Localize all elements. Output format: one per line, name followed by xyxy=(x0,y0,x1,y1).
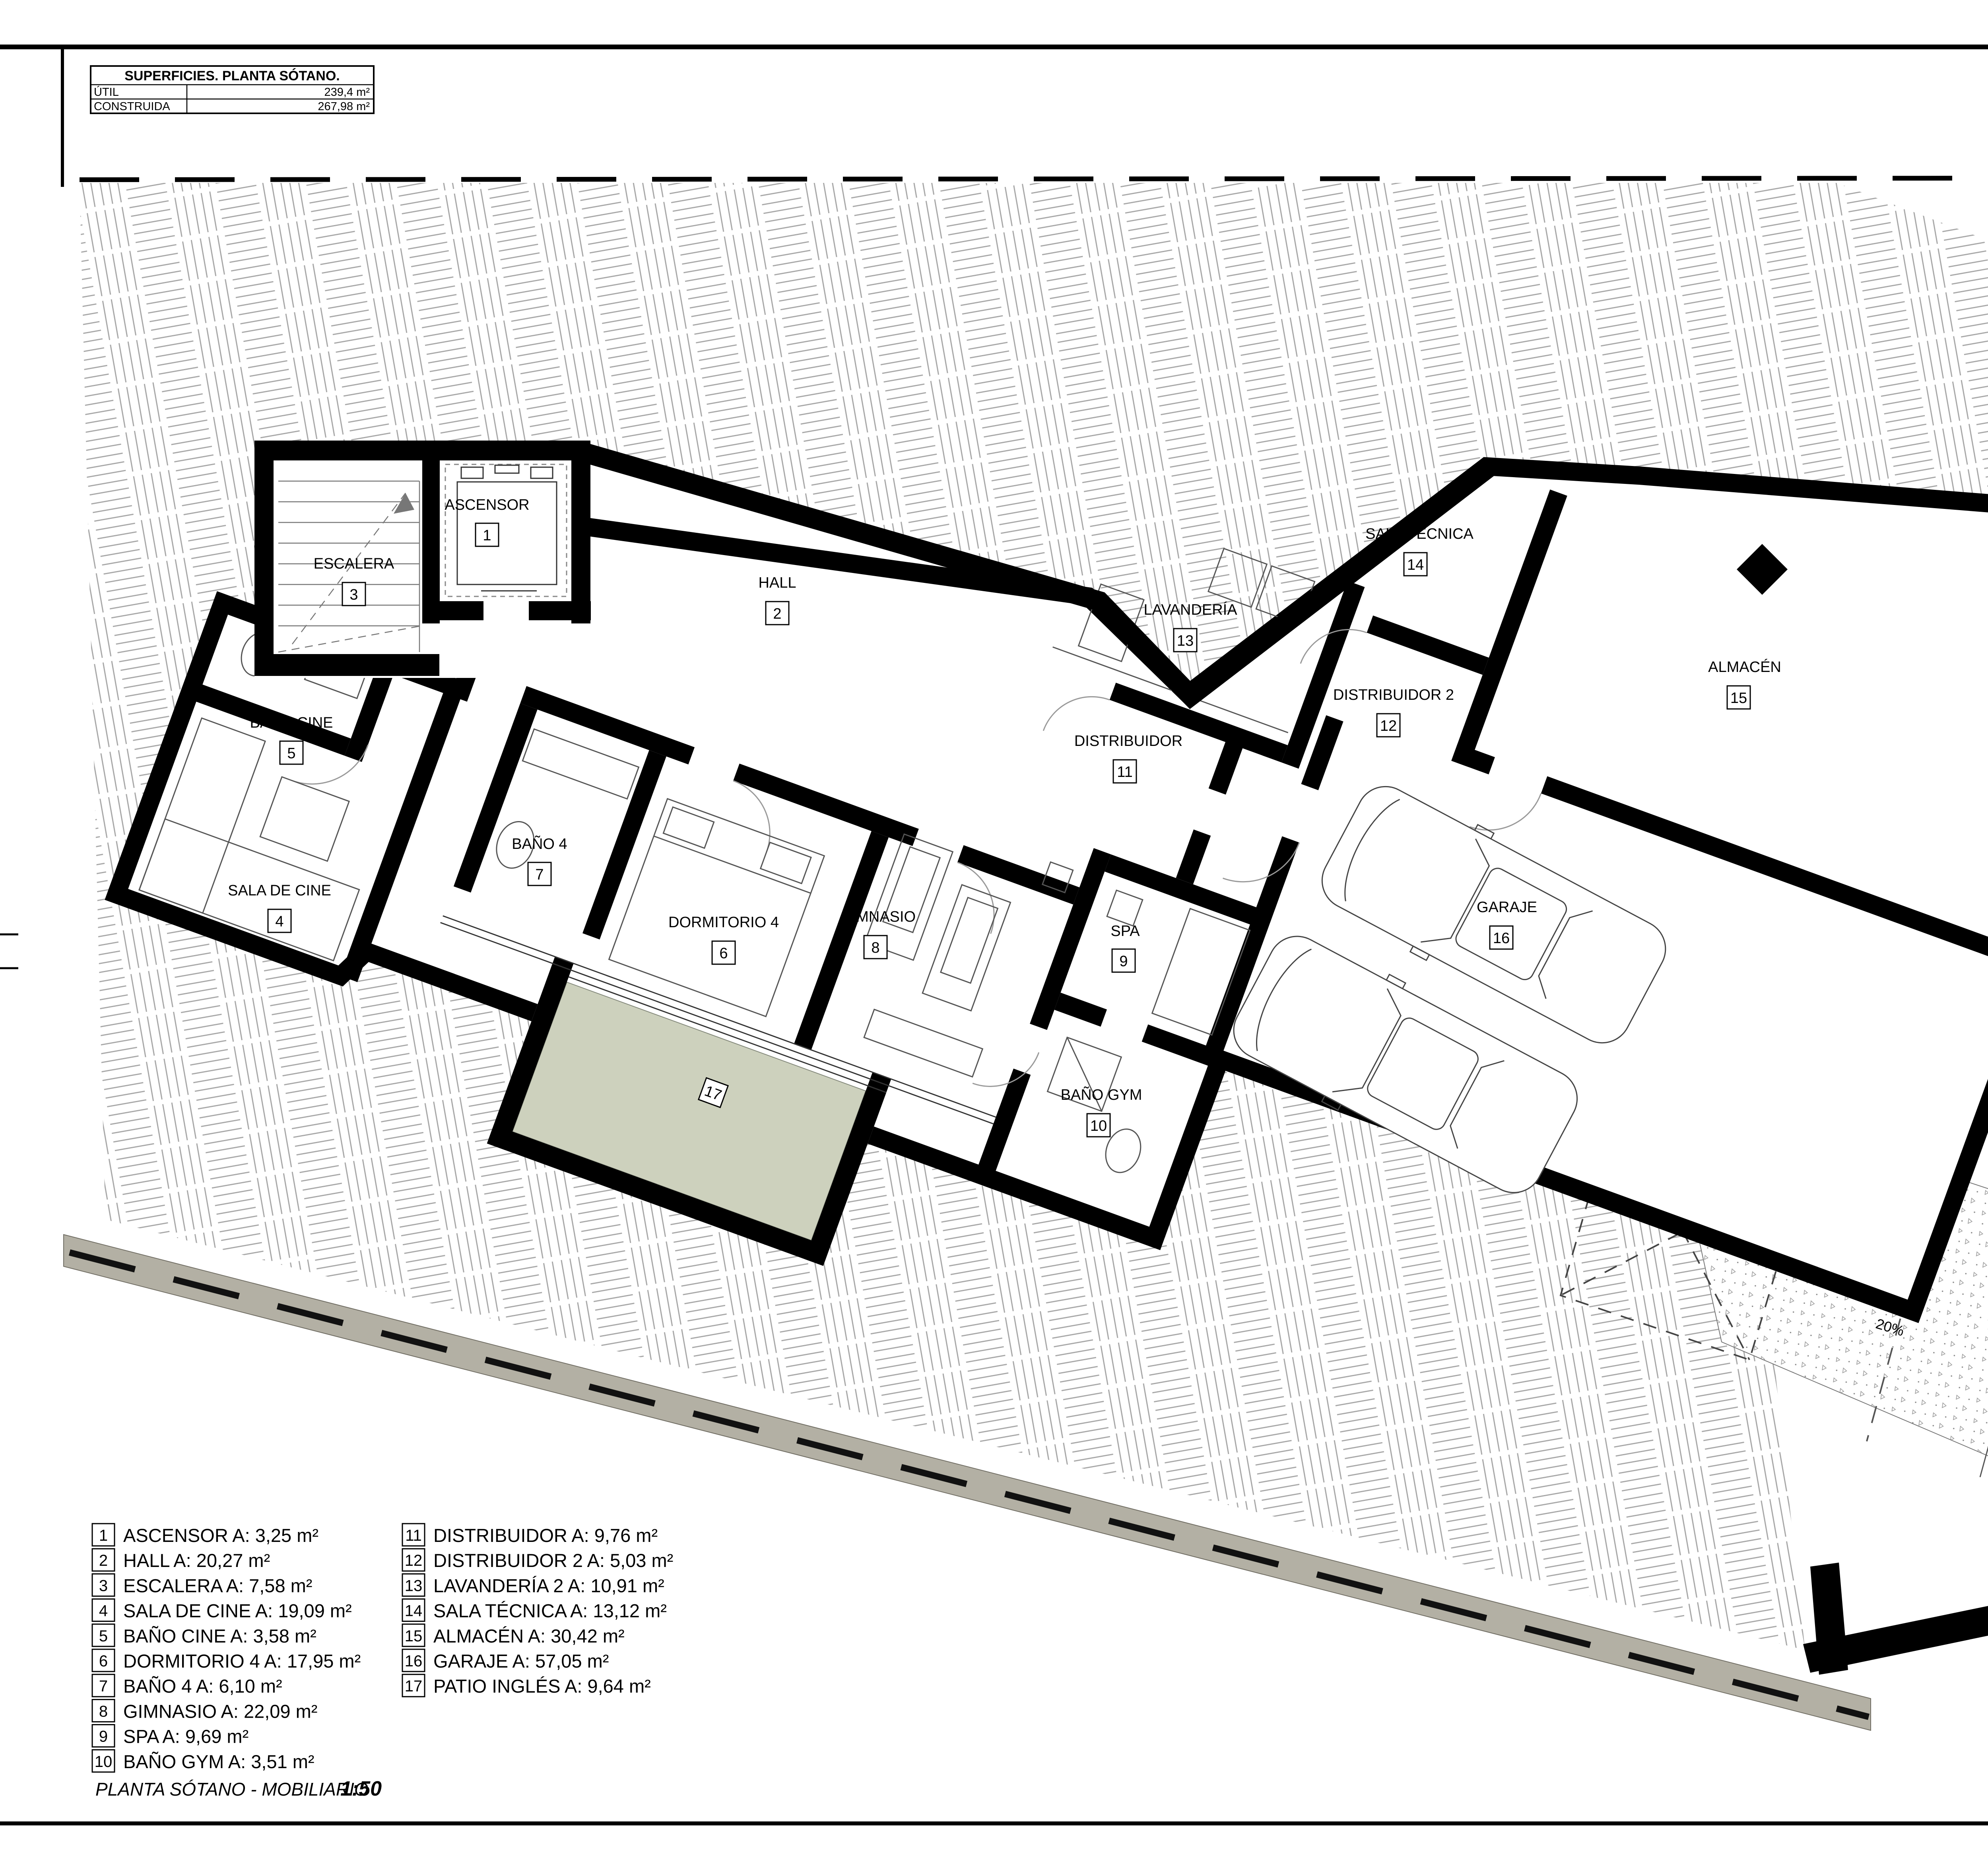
room-name-8: GIMNASIO xyxy=(840,909,916,925)
floor-plan-sheet: { "sheet": { "type": "architectural-floo… xyxy=(0,0,1988,1860)
room-number-9: 9 xyxy=(1119,953,1128,970)
legend-item-17: PATIO INGLÉS A: 9,64 m² xyxy=(433,1676,651,1697)
legend-item-10: BAÑO GYM A: 3,51 m² xyxy=(123,1751,315,1772)
legend-num-6: 6 xyxy=(99,1652,108,1670)
legend-num-2: 2 xyxy=(99,1552,108,1569)
legend-num-10: 10 xyxy=(95,1753,113,1771)
room-number-15: 15 xyxy=(1730,690,1747,707)
legend-num-12: 12 xyxy=(405,1552,423,1569)
room-name-1: ASCENSOR xyxy=(445,497,529,513)
legend-item-2: HALL A: 20,27 m² xyxy=(123,1550,270,1571)
legend-num-5: 5 xyxy=(99,1627,108,1645)
footer: PLANTA SÓTANO - MOBILIARIO 1:50 xyxy=(95,1777,382,1800)
room-name-12: DISTRIBUIDOR 2 xyxy=(1333,687,1454,703)
legend-num-9: 9 xyxy=(99,1728,108,1745)
footer-title: PLANTA SÓTANO - MOBILIARIO xyxy=(95,1779,369,1800)
room-name-5: BAÑO CINE xyxy=(250,714,333,731)
legend-num-7: 7 xyxy=(99,1677,108,1695)
room-name-14: SALA TÉCNICA xyxy=(1365,525,1474,542)
legend-num-1: 1 xyxy=(99,1527,108,1544)
legend-num-4: 4 xyxy=(99,1602,108,1620)
legend-num-11: 11 xyxy=(405,1527,422,1544)
room-number-5: 5 xyxy=(287,745,295,762)
room-number-1: 1 xyxy=(483,527,491,544)
room-number-8: 8 xyxy=(871,940,879,956)
legend-item-1: ASCENSOR A: 3,25 m² xyxy=(123,1525,318,1546)
room-name-15: ALMACÉN xyxy=(1708,658,1781,676)
room-name-7: BAÑO 4 xyxy=(512,835,567,852)
room-name-10: BAÑO GYM xyxy=(1061,1086,1142,1103)
room-name-4: SALA DE CINE xyxy=(228,882,331,899)
building-core xyxy=(254,441,591,678)
room-number-12: 12 xyxy=(1380,718,1397,734)
room-name-13: LAVANDERÍA xyxy=(1143,601,1237,618)
room-number-16: 16 xyxy=(1493,930,1510,947)
legend-item-3: ESCALERA A: 7,58 m² xyxy=(123,1575,312,1596)
legend-item-6: DORMITORIO 4 A: 17,95 m² xyxy=(123,1650,361,1672)
legend-column-2: 11DISTRIBUIDOR A: 9,76 m²12DISTRIBUIDOR … xyxy=(402,1524,673,1697)
legend-item-14: SALA TÉCNICA A: 13,12 m² xyxy=(433,1600,667,1621)
legend-item-15: ALMACÉN A: 30,42 m² xyxy=(433,1625,625,1646)
legend-item-13: LAVANDERÍA 2 A: 10,91 m² xyxy=(433,1575,664,1596)
legend-num-8: 8 xyxy=(99,1703,108,1720)
room-number-4: 4 xyxy=(275,913,283,930)
room-name-16: GARAJE xyxy=(1477,899,1537,916)
footer-scale: 1:50 xyxy=(340,1777,382,1800)
title-row-construida-value: 267,98 m² xyxy=(318,100,370,113)
room-number-14: 14 xyxy=(1407,557,1424,573)
title-row-util-value: 239,4 m² xyxy=(324,86,370,99)
legend-item-4: SALA DE CINE A: 19,09 m² xyxy=(123,1600,352,1621)
legend-item-11: DISTRIBUIDOR A: 9,76 m² xyxy=(433,1525,658,1546)
title-block: SUPERFICIES. PLANTA SÓTANO. ÚTIL 239,4 m… xyxy=(91,66,374,113)
legend-num-16: 16 xyxy=(405,1652,423,1670)
room-name-11: DISTRIBUIDOR xyxy=(1074,733,1182,749)
room-name-9: SPA xyxy=(1110,923,1140,940)
legend-num-13: 13 xyxy=(405,1577,423,1594)
room-number-10: 10 xyxy=(1090,1118,1107,1134)
room-name-6: DORMITORIO 4 xyxy=(668,914,779,931)
legend-num-3: 3 xyxy=(99,1577,108,1594)
legend-column-1: 1ASCENSOR A: 3,25 m²2HALL A: 20,27 m²3ES… xyxy=(92,1524,361,1772)
title-row-util-label: ÚTIL xyxy=(94,85,119,99)
legend-num-17: 17 xyxy=(405,1677,423,1695)
legend-item-16: GARAJE A: 57,05 m² xyxy=(433,1650,609,1672)
legend-item-7: BAÑO 4 A: 6,10 m² xyxy=(123,1676,282,1697)
legend-item-9: SPA A: 9,69 m² xyxy=(123,1726,248,1747)
title-block-title: SUPERFICIES. PLANTA SÓTANO. xyxy=(124,68,340,83)
plan-canvas: LÍMITE DE LA PARCELA 20% 5 % xyxy=(0,0,1988,1860)
room-number-13: 13 xyxy=(1177,633,1194,649)
legend-num-14: 14 xyxy=(405,1602,423,1620)
legend-item-12: DISTRIBUIDOR 2 A: 5,03 m² xyxy=(433,1550,673,1571)
room-number-11: 11 xyxy=(1117,764,1132,781)
legend-item-8: GIMNASIO A: 22,09 m² xyxy=(123,1701,317,1722)
room-number-7: 7 xyxy=(535,866,544,883)
room-number-3: 3 xyxy=(349,586,358,603)
legend-num-15: 15 xyxy=(405,1627,423,1645)
room-number-2: 2 xyxy=(773,606,781,622)
room-name-3: ESCALERA xyxy=(314,555,394,572)
room-number-6: 6 xyxy=(719,945,728,962)
legend-item-5: BAÑO CINE A: 3,58 m² xyxy=(123,1625,316,1646)
title-row-construida-label: CONSTRUIDA xyxy=(94,100,170,113)
room-name-2: HALL xyxy=(758,575,796,591)
